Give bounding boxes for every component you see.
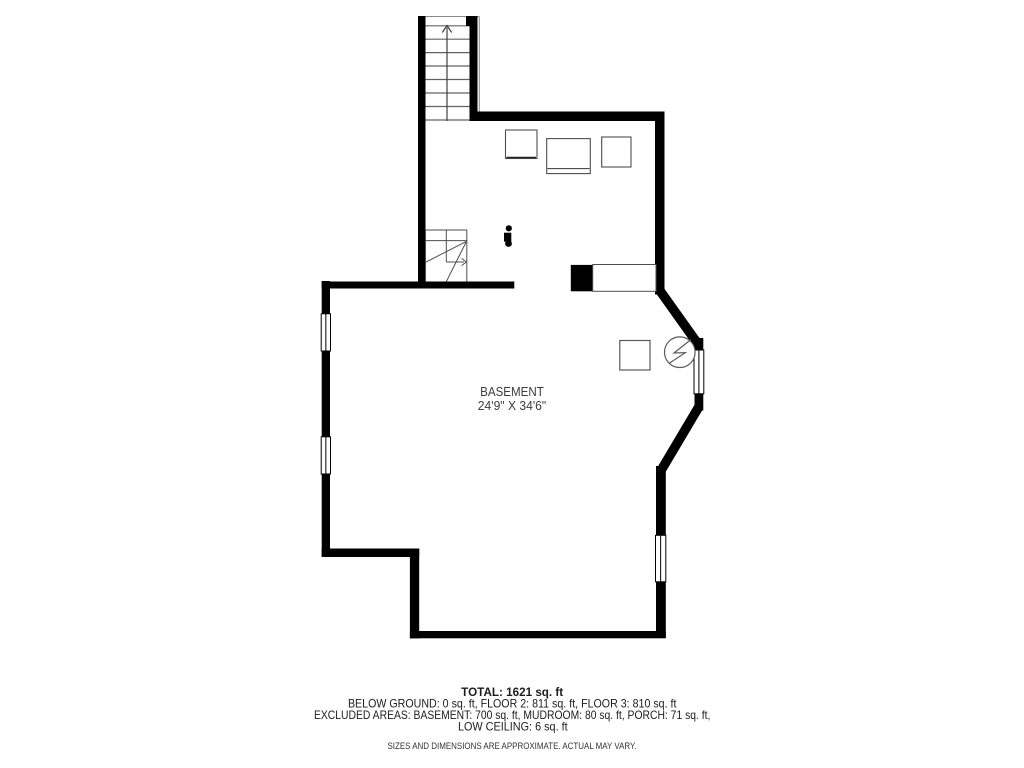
svg-text:24'9" X 34'6": 24'9" X 34'6" [478, 399, 546, 413]
svg-text:SIZES AND DIMENSIONS ARE APPRO: SIZES AND DIMENSIONS ARE APPROXIMATE. AC… [388, 741, 637, 751]
svg-text:LOW CEILING: 6 sq. ft: LOW CEILING: 6 sq. ft [458, 721, 568, 734]
svg-text:BASEMENT: BASEMENT [480, 385, 544, 399]
